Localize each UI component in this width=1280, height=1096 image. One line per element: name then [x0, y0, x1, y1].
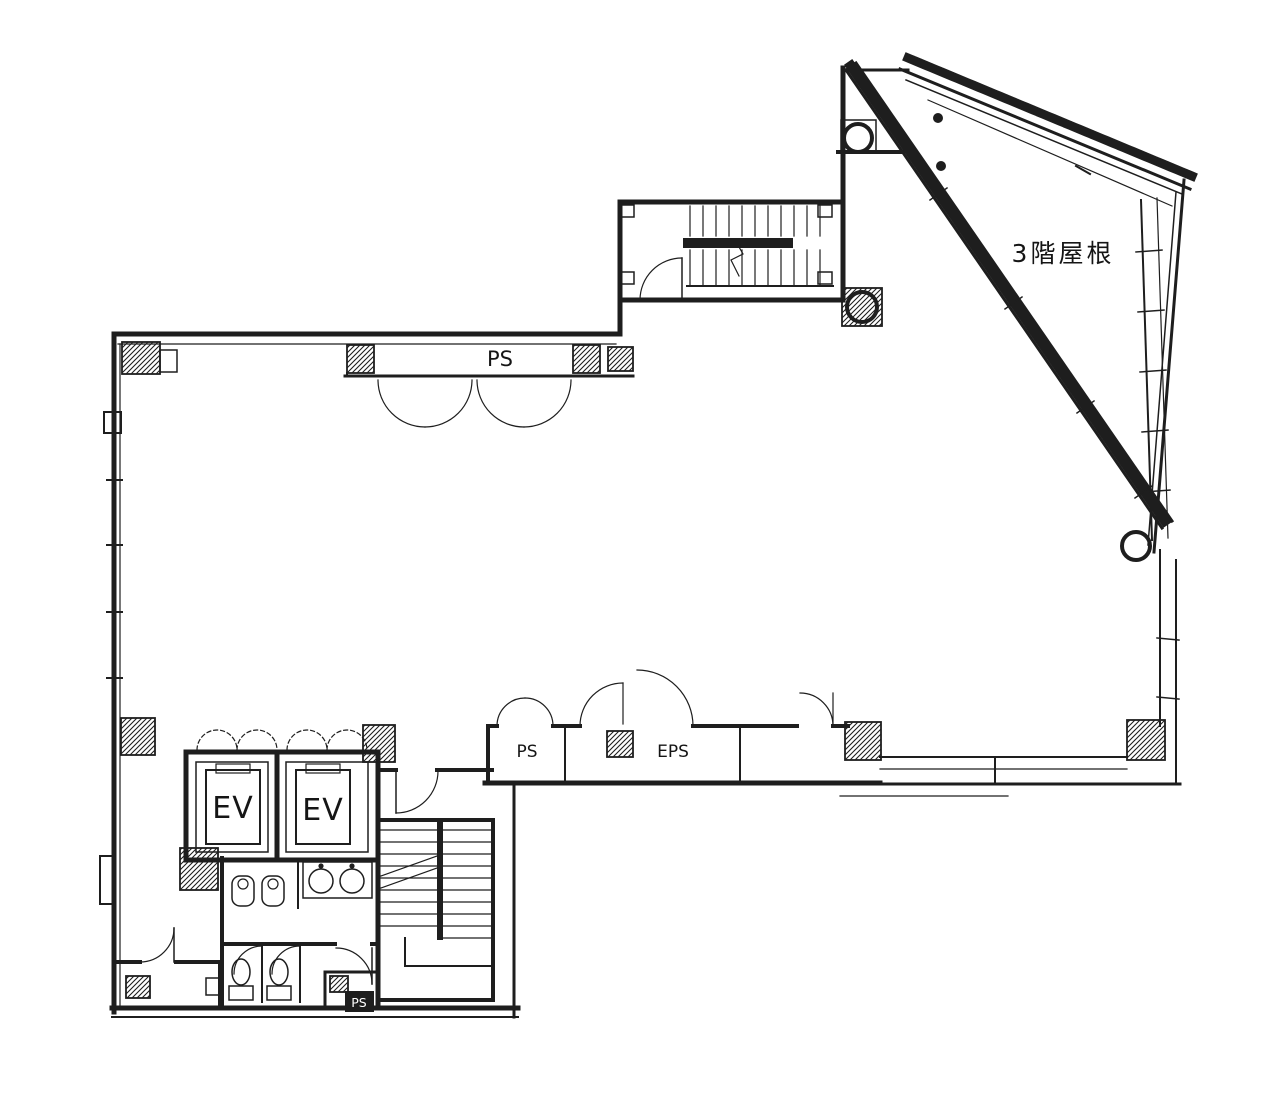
door-swing: [140, 928, 174, 962]
column: [845, 722, 881, 760]
perimeter-walls: [100, 334, 620, 1017]
diagonal-wall: [846, 63, 1172, 528]
round-column: [1122, 532, 1150, 560]
upper-staircase: [620, 202, 843, 334]
ev-door-swings-dashed: [197, 730, 367, 750]
stair-treads-upper-flight: [690, 206, 820, 236]
basin-counter: [303, 862, 372, 898]
stair-divider: [437, 822, 443, 940]
wc-bowl: [232, 959, 250, 985]
basin: [340, 869, 364, 893]
shaft-box: [126, 976, 150, 998]
ev-door-sill: [306, 764, 340, 773]
stair-treads-right: [443, 830, 491, 938]
ps-strip-label: PS: [516, 742, 537, 762]
urinal: [232, 876, 254, 906]
stair-door-swing: [640, 258, 682, 300]
ps-top-label: PS: [487, 347, 513, 371]
door-swing: [396, 771, 438, 813]
strip-door-swings: [497, 670, 833, 726]
urinal: [262, 876, 284, 906]
floor-plan-page: 3階屋根 PS PS EPS EV EV PS: [0, 0, 1280, 1096]
stair-landing: [405, 938, 491, 966]
column: [121, 718, 155, 755]
eps-strip-label: EPS: [657, 742, 689, 762]
column: [347, 345, 374, 373]
bottom-left-room: [114, 928, 222, 1008]
column: [573, 345, 600, 373]
ps-toilet-label: PS: [351, 995, 367, 1010]
roof-edge-hatching: [908, 58, 1192, 176]
roof-triangle: [900, 58, 1192, 552]
tap: [349, 863, 354, 868]
wc-bowl: [270, 959, 288, 985]
column: [1127, 720, 1165, 760]
wc-tank: [267, 986, 291, 1000]
service-strip: [485, 670, 880, 783]
roof-drain-dot: [933, 113, 943, 123]
column: [607, 731, 633, 757]
ev-left-label: EV: [212, 791, 253, 826]
floor-plan-drawing: 3階屋根 PS PS EPS EV EV PS: [0, 0, 1280, 1096]
basin: [309, 869, 333, 893]
stair-handrail: [683, 238, 793, 248]
ps-shaft-top: [345, 373, 633, 427]
column: [122, 342, 160, 374]
curtain-wall-bottom: [840, 757, 1180, 796]
tap: [318, 863, 323, 868]
stair-treads-lower-flight: [690, 250, 820, 286]
ev-right-label: EV: [302, 793, 343, 828]
lower-staircase: [378, 820, 493, 1000]
toilet-stalls: [229, 944, 300, 1002]
column: [608, 347, 633, 371]
double-door-swings: [378, 380, 571, 427]
wash-basins: [303, 862, 372, 898]
roof-drain-dot: [936, 161, 946, 171]
roof-label: 3階屋根: [1012, 239, 1115, 268]
wc-tank: [229, 986, 253, 1000]
ev-door-sill: [216, 764, 250, 773]
urinals: [232, 876, 284, 906]
shaft-box: [330, 976, 348, 992]
round-column: [844, 124, 872, 152]
